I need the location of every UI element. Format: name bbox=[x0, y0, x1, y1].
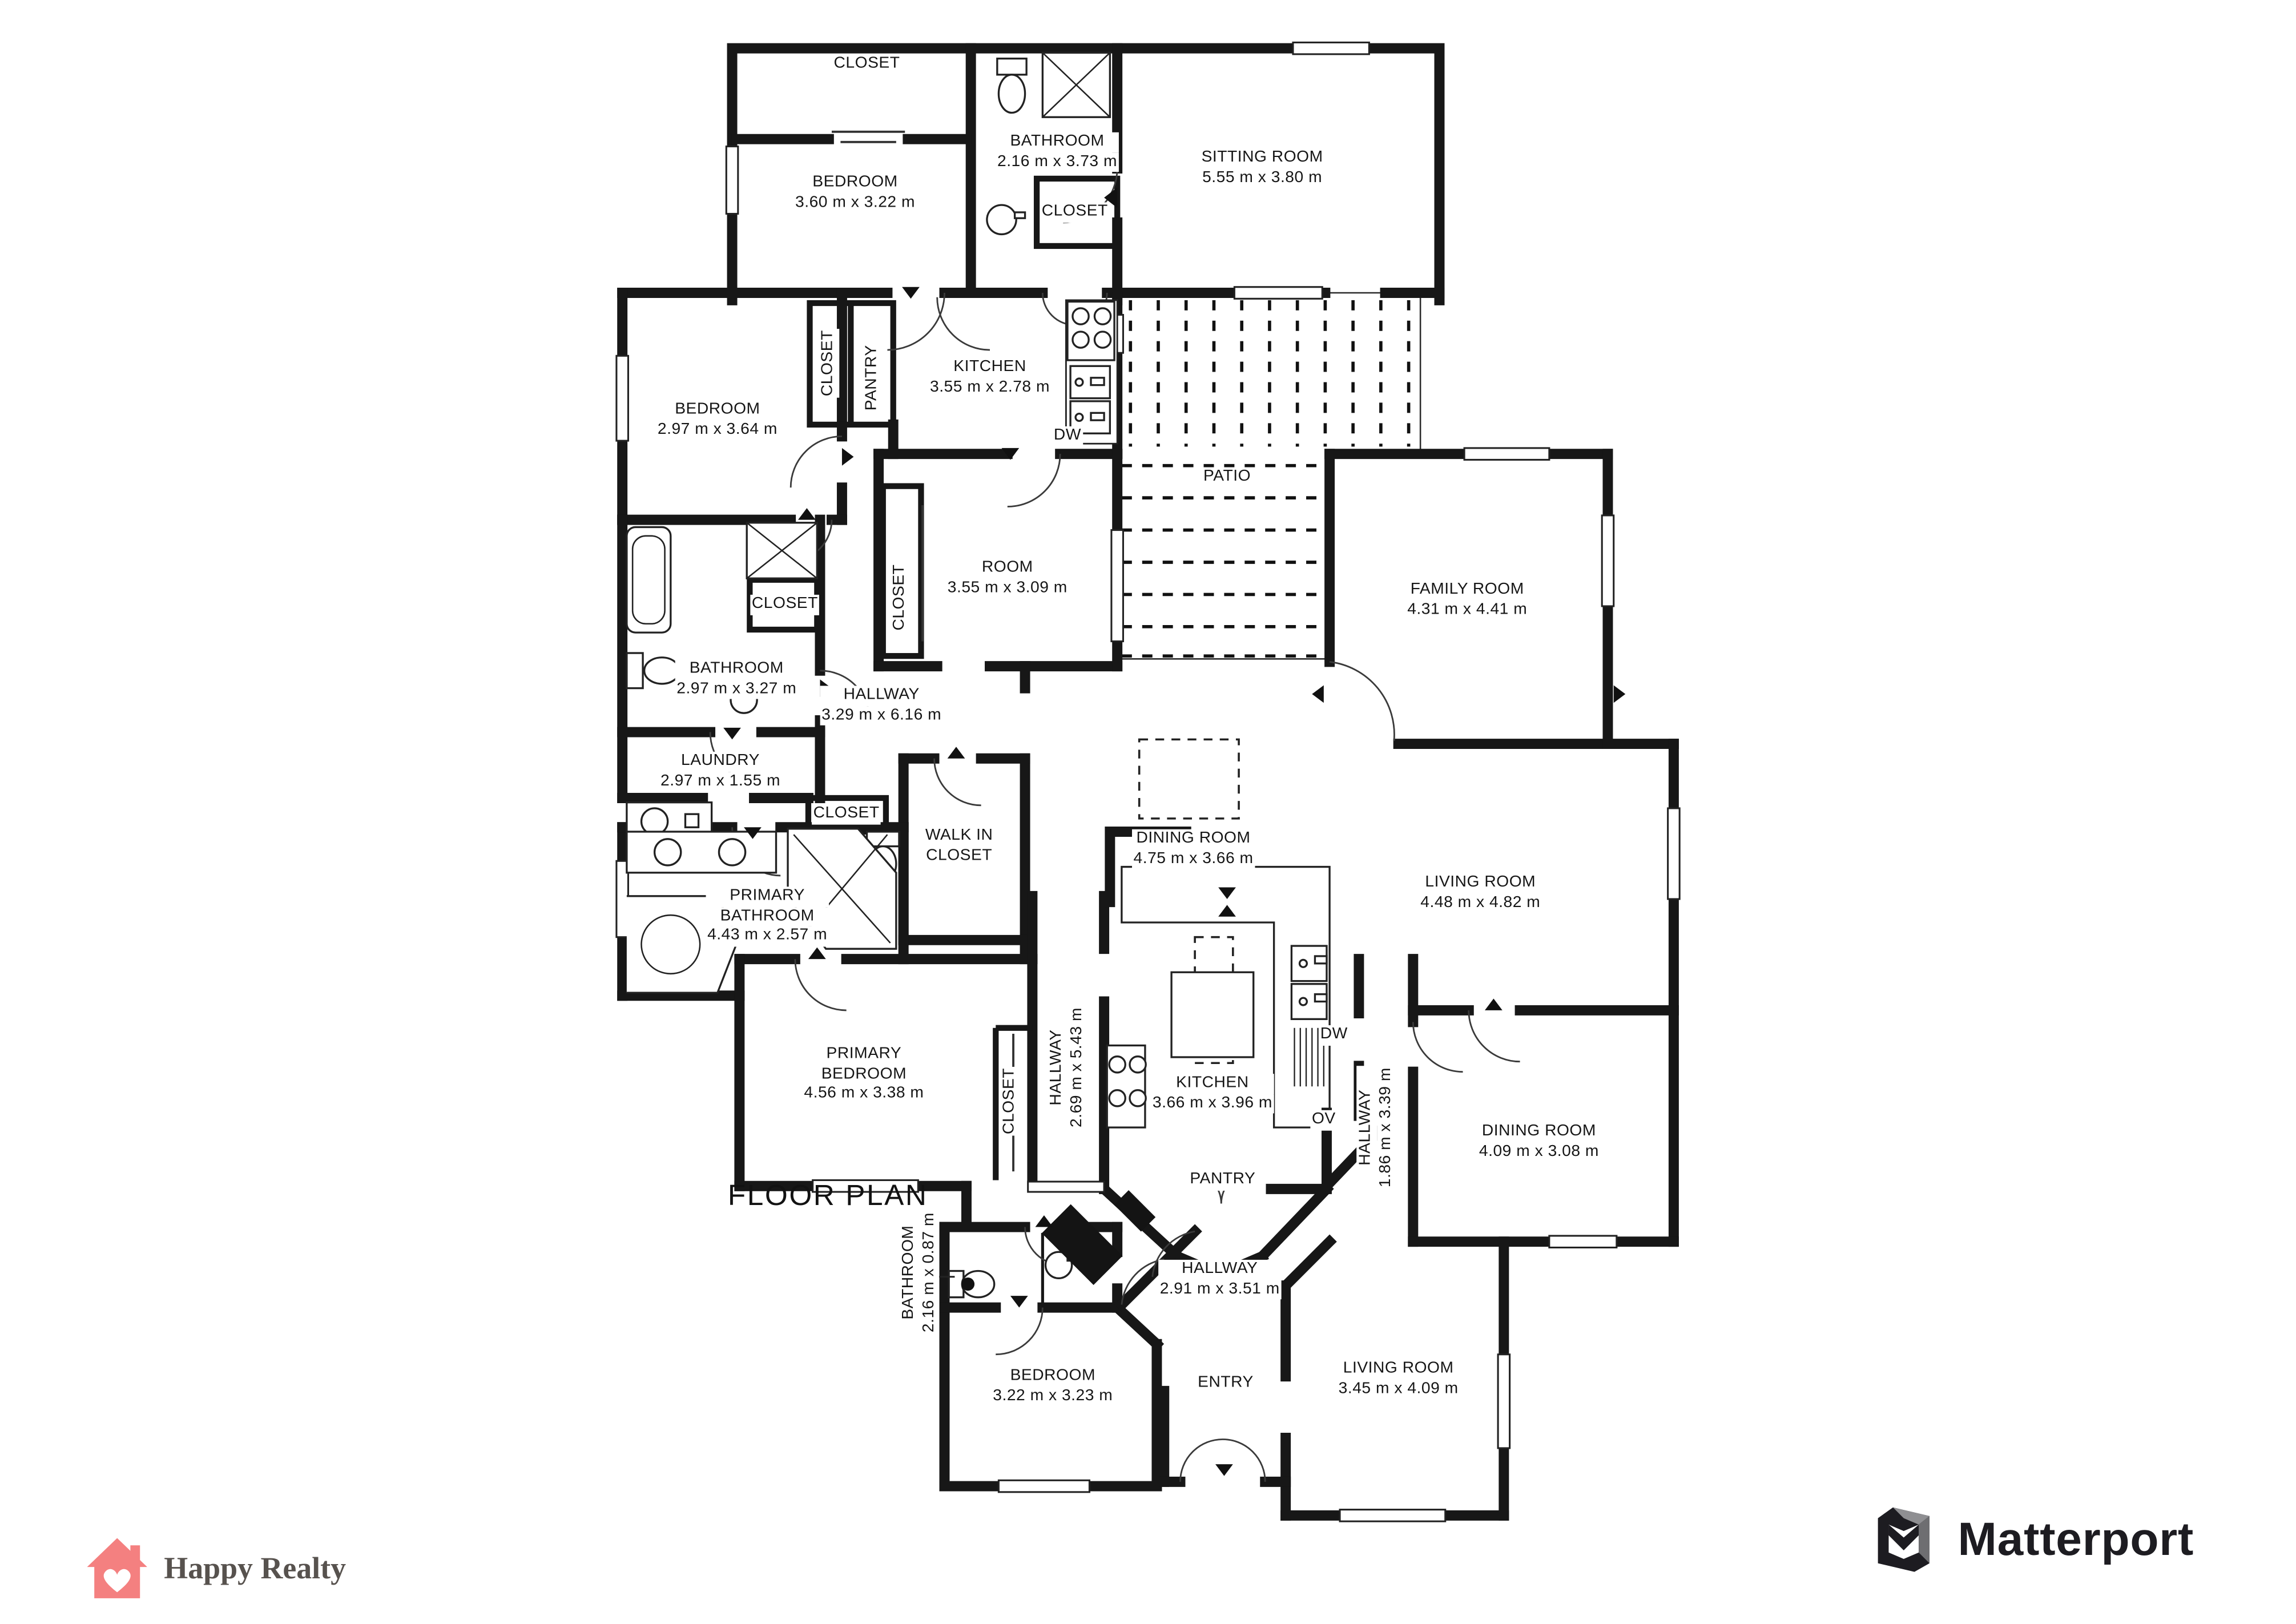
room-label-living-room-2: LIVING ROOM3.45 m x 4.09 m bbox=[1337, 1359, 1460, 1399]
room-label-line: DW bbox=[1319, 1025, 1349, 1045]
room-label-line: BATHROOM bbox=[996, 132, 1118, 152]
room-label-line: 4.56 m x 3.38 m bbox=[803, 1085, 925, 1105]
room-label-closet-3: CLOSET bbox=[812, 804, 881, 824]
floor-plan: CLOSETBEDROOM3.60 m x 3.22 mBATHROOM2.16… bbox=[0, 0, 2296, 1624]
provider-logo: Matterport bbox=[1876, 1505, 2194, 1574]
room-label-line: CLOSET bbox=[819, 329, 839, 398]
room-label-line: BATHROOM bbox=[675, 659, 798, 679]
room-label-bedroom-1: BEDROOM3.60 m x 3.22 m bbox=[793, 174, 916, 213]
room-label-line: BEDROOM bbox=[992, 1367, 1114, 1387]
room-label-line: LIVING ROOM bbox=[1337, 1359, 1460, 1379]
room-label-line: 4.43 m x 2.57 m bbox=[706, 926, 829, 946]
room-label-closet-bath-2: CLOSET bbox=[750, 595, 819, 615]
agency-logo: Happy Realty bbox=[83, 1534, 346, 1602]
room-label-hallway-4: HALLWAY2.91 m x 3.51 m bbox=[1158, 1260, 1281, 1300]
room-label-line: ENTRY bbox=[1197, 1374, 1255, 1394]
room-label-line: 3.29 m x 6.16 m bbox=[820, 706, 943, 726]
room-label-bedroom-3: BEDROOM3.22 m x 3.23 m bbox=[992, 1367, 1114, 1407]
room-label-closet-top: CLOSET bbox=[832, 54, 901, 74]
room-label-hallway-2: HALLWAY2.69 m x 5.43 m bbox=[1048, 1006, 1087, 1129]
room-label-kitchen-2: KITCHEN3.66 m x 3.96 m bbox=[1151, 1074, 1274, 1114]
room-label-hallway-1: HALLWAY3.29 m x 6.16 m bbox=[820, 686, 943, 726]
room-label-line: HALLWAY bbox=[1048, 1006, 1068, 1129]
page-title: FLOOR PLAN bbox=[728, 1180, 928, 1214]
agency-house-icon bbox=[83, 1534, 151, 1602]
room-label-line: BEDROOM bbox=[656, 400, 779, 420]
room-label-pantry-1: PANTRY bbox=[863, 344, 883, 412]
room-label-family-room: FAMILY ROOM4.31 m x 4.41 m bbox=[1406, 581, 1529, 620]
room-label-line: BEDROOM bbox=[793, 174, 916, 194]
provider-name: Matterport bbox=[1958, 1513, 2194, 1567]
room-label-line: BATHROOM bbox=[706, 906, 829, 926]
room-label-line: 2.97 m x 3.27 m bbox=[675, 679, 798, 699]
room-label-line: 1.86 m x 3.39 m bbox=[1376, 1066, 1396, 1189]
room-label-line: PATIO bbox=[1202, 468, 1252, 487]
room-label-line: CLOSET bbox=[891, 563, 911, 632]
room-label-line: CLOSET bbox=[1000, 1066, 1020, 1135]
room-label-line: 4.75 m x 3.66 m bbox=[1132, 849, 1255, 869]
room-label-pantry-2: PANTRY bbox=[1189, 1170, 1257, 1190]
room-label-primary-bathroom: PRIMARYBATHROOM4.43 m x 2.57 m bbox=[706, 886, 829, 946]
room-label-line: 3.60 m x 3.22 m bbox=[793, 194, 916, 213]
room-label-line: 3.45 m x 4.09 m bbox=[1337, 1379, 1460, 1399]
room-label-line: 3.66 m x 3.96 m bbox=[1151, 1094, 1274, 1114]
room-label-line: PRIMARY bbox=[803, 1045, 925, 1065]
room-label-line: 3.22 m x 3.23 m bbox=[992, 1387, 1114, 1407]
room-label-primary-bedroom: PRIMARYBEDROOM4.56 m x 3.38 m bbox=[803, 1045, 925, 1105]
room-label-line: WALK IN bbox=[924, 827, 994, 847]
room-label-line: KITCHEN bbox=[1151, 1074, 1274, 1094]
room-label-patio: PATIO bbox=[1202, 468, 1252, 487]
room-label-line: CLOSET bbox=[750, 595, 819, 615]
room-label-living-room-1: LIVING ROOM4.48 m x 4.82 m bbox=[1419, 873, 1542, 913]
room-label-bathroom-3: BATHROOM2.16 m x 0.87 m bbox=[900, 1211, 940, 1333]
room-label-line: HALLWAY bbox=[820, 686, 943, 706]
room-label-hallway-3: HALLWAY1.86 m x 3.39 m bbox=[1356, 1066, 1396, 1189]
room-label-line: SITTING ROOM bbox=[1200, 148, 1324, 168]
room-label-bedroom-2: BEDROOM2.97 m x 3.64 m bbox=[656, 400, 779, 440]
room-label-line: 2.91 m x 3.51 m bbox=[1158, 1280, 1281, 1300]
room-label-closet-primary: CLOSET bbox=[1000, 1066, 1020, 1135]
room-label-entry: ENTRY bbox=[1197, 1374, 1255, 1394]
room-label-line: 2.69 m x 5.43 m bbox=[1068, 1006, 1087, 1129]
room-label-dw-1: DW bbox=[1052, 426, 1082, 446]
room-label-sitting-room: SITTING ROOM5.55 m x 3.80 m bbox=[1200, 148, 1324, 188]
room-label-line: 4.31 m x 4.41 m bbox=[1406, 601, 1529, 620]
room-label-walk-in-closet: WALK INCLOSET bbox=[924, 827, 994, 867]
room-label-closet-room: CLOSET bbox=[891, 563, 911, 632]
labels-layer: CLOSETBEDROOM3.60 m x 3.22 mBATHROOM2.16… bbox=[0, 0, 2296, 1624]
room-label-bathroom-1: BATHROOM2.16 m x 3.73 m bbox=[996, 132, 1118, 172]
room-label-dining-room-1: DINING ROOM4.75 m x 3.66 m bbox=[1132, 829, 1255, 869]
room-label-line: FAMILY ROOM bbox=[1406, 581, 1529, 601]
room-label-line: 3.55 m x 3.09 m bbox=[946, 578, 1069, 598]
room-label-line: KITCHEN bbox=[928, 358, 1051, 378]
room-label-line: BATHROOM bbox=[900, 1211, 920, 1333]
room-label-line: DINING ROOM bbox=[1132, 829, 1255, 849]
agency-name: Happy Realty bbox=[164, 1550, 346, 1586]
room-label-laundry: LAUNDRY2.97 m x 1.55 m bbox=[659, 752, 782, 792]
room-label-dw-2: DW bbox=[1319, 1025, 1349, 1045]
room-label-line: 4.48 m x 4.82 m bbox=[1419, 893, 1542, 913]
room-label-line: PANTRY bbox=[1189, 1170, 1257, 1190]
room-label-line: PANTRY bbox=[863, 344, 883, 412]
room-label-line: PRIMARY bbox=[706, 886, 829, 906]
room-label-line: LIVING ROOM bbox=[1419, 873, 1542, 893]
room-label-line: ROOM bbox=[946, 558, 1069, 578]
room-label-room: ROOM3.55 m x 3.09 m bbox=[946, 558, 1069, 598]
room-label-line: LAUNDRY bbox=[659, 752, 782, 772]
room-label-line: DW bbox=[1052, 426, 1082, 446]
room-label-line: CLOSET bbox=[812, 804, 881, 824]
room-label-line: 2.16 m x 3.73 m bbox=[996, 152, 1118, 172]
room-label-closet-strip: CLOSET bbox=[819, 329, 839, 398]
room-label-line: CLOSET bbox=[1040, 202, 1109, 222]
room-label-kitchen-1: KITCHEN3.55 m x 2.78 m bbox=[928, 358, 1051, 398]
room-label-line: 2.16 m x 0.87 m bbox=[920, 1211, 940, 1333]
room-label-line: 4.09 m x 3.08 m bbox=[1477, 1142, 1600, 1162]
room-label-dining-room-2: DINING ROOM4.09 m x 3.08 m bbox=[1477, 1122, 1600, 1162]
provider-m-icon bbox=[1876, 1505, 1940, 1574]
room-label-ov: OV bbox=[1310, 1110, 1337, 1130]
room-label-line: 2.97 m x 1.55 m bbox=[659, 772, 782, 792]
room-label-line: 3.55 m x 2.78 m bbox=[928, 378, 1051, 398]
room-label-line: 5.55 m x 3.80 m bbox=[1200, 168, 1324, 188]
room-label-line: OV bbox=[1310, 1110, 1337, 1130]
room-label-line: CLOSET bbox=[832, 54, 901, 74]
room-label-line: 2.97 m x 3.64 m bbox=[656, 420, 779, 440]
room-label-line: HALLWAY bbox=[1158, 1260, 1281, 1280]
room-label-line: DINING ROOM bbox=[1477, 1122, 1600, 1142]
room-label-line: HALLWAY bbox=[1356, 1066, 1376, 1189]
room-label-closet-bath-1: CLOSET bbox=[1040, 202, 1109, 222]
room-label-bathroom-2: BATHROOM2.97 m x 3.27 m bbox=[675, 659, 798, 699]
room-label-line: BEDROOM bbox=[803, 1065, 925, 1085]
room-label-line: CLOSET bbox=[924, 847, 994, 867]
